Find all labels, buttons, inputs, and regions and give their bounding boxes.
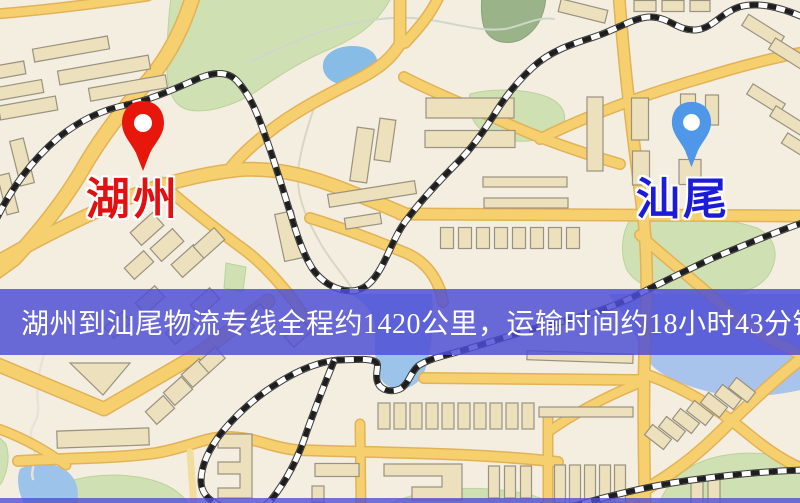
bottom-strip xyxy=(0,498,800,503)
map-container: 湖州到汕尾物流专线全程约1420公里，运输时间约18小时43分钟. 湖州 汕尾 xyxy=(0,0,800,503)
origin-pin-icon xyxy=(119,99,167,173)
origin-pin-label: 湖州 xyxy=(86,178,180,222)
info-banner: 湖州到汕尾物流专线全程约1420公里，运输时间约18小时43分钟. xyxy=(0,289,800,355)
destination-pin-label: 汕尾 xyxy=(636,178,730,222)
banner-text: 湖州到汕尾物流专线全程约1420公里，运输时间约18小时43分钟. xyxy=(0,302,800,342)
destination-pin-icon xyxy=(669,100,714,169)
map-canvas xyxy=(0,0,800,503)
destination-pin[interactable] xyxy=(669,100,714,174)
origin-pin[interactable] xyxy=(119,99,167,178)
